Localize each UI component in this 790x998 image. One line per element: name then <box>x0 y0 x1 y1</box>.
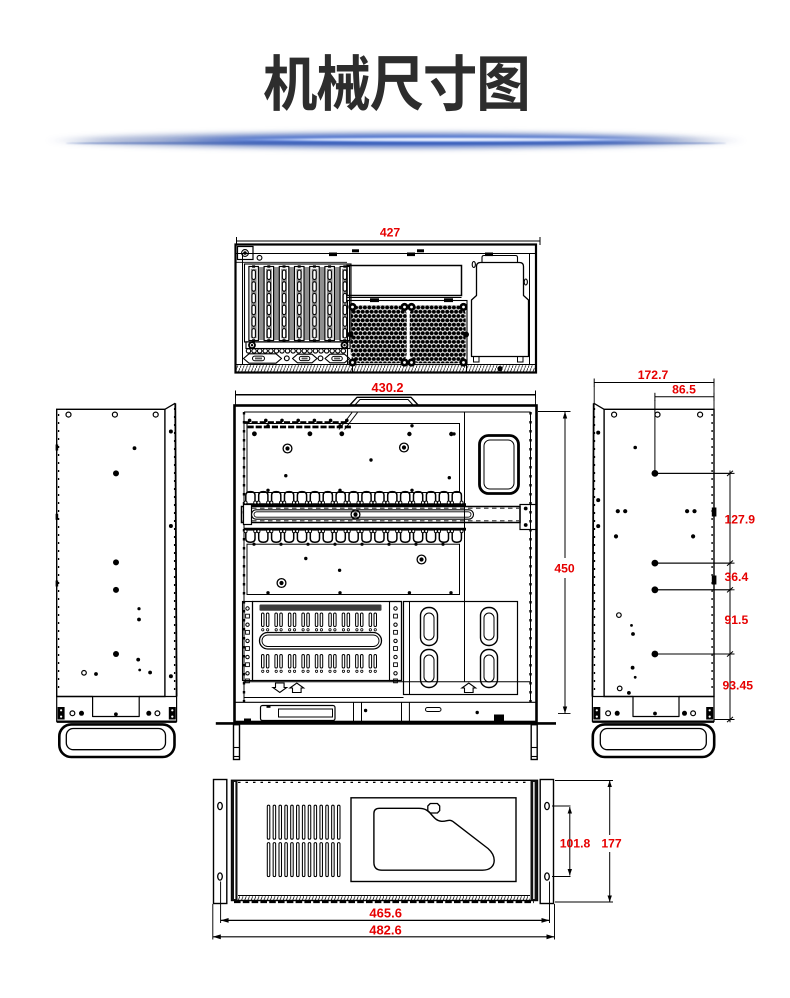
svg-text:450: 450 <box>554 562 575 576</box>
svg-text:465.6: 465.6 <box>369 905 402 920</box>
svg-text:86.5: 86.5 <box>672 383 696 397</box>
svg-text:91.5: 91.5 <box>725 613 749 627</box>
svg-text:93.45: 93.45 <box>723 679 754 693</box>
svg-text:482.6: 482.6 <box>369 923 402 938</box>
svg-text:172.7: 172.7 <box>638 368 669 382</box>
svg-text:177: 177 <box>601 837 622 851</box>
svg-text:427: 427 <box>380 226 401 240</box>
svg-text:36.4: 36.4 <box>725 570 749 584</box>
svg-text:127.9: 127.9 <box>725 513 756 527</box>
svg-text:430.2: 430.2 <box>371 380 403 395</box>
svg-text:101.8: 101.8 <box>560 837 591 851</box>
